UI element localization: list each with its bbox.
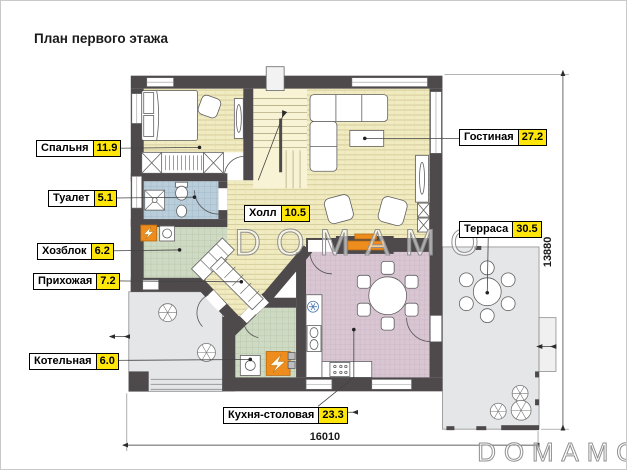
room-area: 30.5 — [513, 222, 540, 237]
room-name: Холл — [245, 206, 282, 221]
electric-panel — [141, 225, 157, 241]
washbasin — [177, 205, 187, 217]
terrace-step — [539, 318, 556, 372]
room-name: Котельная — [30, 354, 97, 369]
room-name: Терраса — [460, 222, 513, 237]
terrace-area — [442, 246, 556, 430]
dimension-width: 16010 — [310, 431, 340, 443]
room-label-living: Гостиная27.2 — [459, 129, 547, 146]
dimension-height: 13880 — [542, 237, 554, 267]
washing-machine — [160, 226, 175, 241]
room-name: Спальня — [37, 141, 94, 156]
watermark-corner: DOMAMO — [477, 439, 626, 467]
floor-plan-page: План первого этажа — [0, 0, 627, 470]
room-area: 11.9 — [94, 141, 121, 156]
stove — [330, 362, 350, 376]
room-area: 5.1 — [95, 191, 116, 206]
room-name: Гостиная — [460, 130, 519, 145]
room-name: Хозблок — [38, 244, 92, 259]
watermark-center: DOMAMO — [234, 222, 493, 263]
room-area: 7.2 — [97, 274, 118, 289]
fridge-icon — [308, 301, 319, 312]
room-area: 6.0 — [97, 354, 118, 369]
room-area: 23.3 — [319, 408, 346, 423]
room-label-toilet: Туалет5.1 — [48, 190, 117, 207]
room-name: Кухня-столовая — [224, 408, 319, 423]
porch-area — [129, 292, 223, 392]
shower — [145, 190, 165, 210]
wardrobe — [142, 152, 224, 173]
room-name: Туалет — [49, 191, 95, 206]
room-name: Прихожая — [34, 274, 97, 289]
room-label-utility: Хозблок6.2 — [37, 243, 114, 260]
tv-cabinet — [416, 155, 429, 202]
room-label-boiler: Котельная6.0 — [29, 353, 119, 370]
chimney — [266, 67, 284, 91]
room-area: 6.2 — [92, 244, 113, 259]
bedroom-cabinet — [234, 99, 243, 139]
room-label-hallway: Прихожая7.2 — [33, 273, 120, 290]
room-area: 27.2 — [519, 130, 546, 145]
boiler — [266, 352, 290, 376]
room-label-bedroom: Спальня11.9 — [36, 140, 121, 157]
room-label-hall: Холл10.5 — [244, 205, 310, 222]
room-label-kitchen: Кухня-столовая23.3 — [223, 407, 348, 424]
room-area: 10.5 — [282, 206, 309, 221]
room-label-terrace: Терраса30.5 — [459, 221, 542, 238]
bed — [142, 91, 198, 141]
